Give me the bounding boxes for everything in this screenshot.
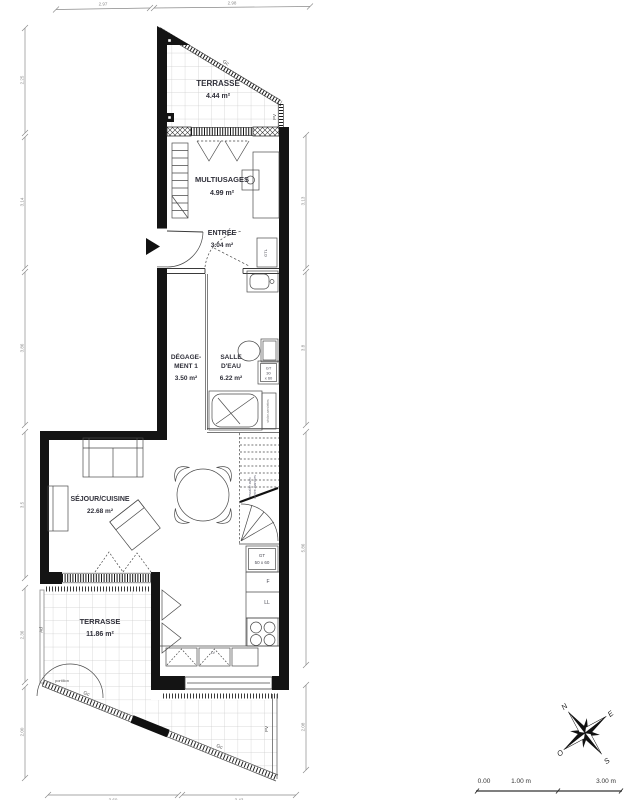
room-label-multiusages: MULTIUSAGES — [195, 175, 249, 184]
ad-label: Ad — [39, 627, 44, 633]
room-area-multiusages: 4.99 m² — [210, 190, 235, 197]
room-label-degagement-1: DÉGAGE- — [171, 352, 201, 361]
room-area-sejour: 22.68 m² — [87, 508, 114, 515]
hob — [247, 618, 278, 646]
window-opening-indicator — [95, 552, 123, 572]
entrance-door-leaf — [167, 231, 203, 232]
pv-label-top: PV — [272, 114, 277, 120]
room-area-terrasse-bottom: 11.86 m² — [86, 631, 114, 638]
room-label-sejour: SÉJOUR/CUISINE — [70, 494, 129, 503]
floorplan-page: Gc PV TERRASSE 4.44 m² — [0, 0, 629, 800]
washing-machine-label: LL — [264, 600, 270, 606]
room-label-entree: ENTRÉE — [208, 228, 237, 237]
dim-top-1: 2.97 — [99, 2, 108, 7]
gtl-label: GTL — [263, 248, 268, 257]
stairs-cut-line — [240, 488, 278, 502]
portillon-label: portillon — [55, 678, 69, 683]
accordion-door — [162, 590, 181, 653]
entrance-door-swing — [167, 232, 203, 267]
dim-left-6: 2.00 — [20, 727, 25, 736]
kitchen: GT 50 x 60 F LL LV — [160, 546, 279, 666]
top-terrace: Gc PV TERRASSE 4.44 m² — [157, 26, 283, 127]
gt30-size2: x 60 — [265, 376, 273, 381]
dim-right-4: 2.08 — [301, 722, 306, 731]
folding-door — [197, 141, 249, 161]
room-area-entree: 3.04 m² — [211, 242, 234, 249]
entrance-arrow — [146, 238, 160, 255]
gt50-label: GT — [259, 553, 266, 558]
dining-table — [177, 469, 229, 521]
salle-eau-room: GT 30 x 60 sèche-serviettes DÉGAGE- MENT… — [171, 271, 279, 430]
floorplan-drawing: Gc PV TERRASSE 4.44 m² — [0, 0, 629, 800]
scale-one: 1.00 m — [511, 778, 531, 785]
room-label-salle-eau-2: D'EAU — [221, 363, 241, 370]
compass-rose: N E S O — [534, 681, 629, 786]
armchair — [110, 500, 161, 551]
gt50-cabinet — [246, 546, 278, 572]
dim-right-3: 5.86 — [301, 543, 306, 552]
stairs-label-2: contre-marches — [253, 475, 257, 499]
dim-left-3: 3.86 — [20, 343, 25, 352]
compass-e: E — [606, 708, 616, 719]
towel-radiator-label: sèche-serviettes — [266, 399, 270, 423]
terrace-left-edge — [40, 590, 44, 683]
compass-n: N — [559, 701, 569, 712]
gt50-size: 50 x 60 — [255, 560, 270, 565]
entree-room: GTL ENTRÉE 3.04 m² — [146, 228, 277, 267]
left-wall — [157, 136, 167, 228]
scale-zero: 0.00 — [478, 778, 491, 785]
stairs: escalier avec contre-marches — [239, 433, 279, 545]
room-label-degagement-2: MENT 1 — [174, 363, 198, 370]
dim-right-1: 3.13 — [301, 196, 306, 205]
dim-left-4: 3.5 — [20, 501, 25, 508]
compass-w: O — [555, 748, 565, 759]
dim-left-5: 2.36 — [20, 630, 25, 639]
sejour-cuisine-room: SÉJOUR/CUISINE 22.68 m² — [48, 438, 236, 572]
room-area-degagement: 3.50 m² — [175, 375, 198, 382]
room-label-salle-eau-1: SALLE — [220, 354, 242, 361]
room-area-terrasse-top: 4.44 m² — [206, 93, 231, 100]
room-area-salle-eau: 6.22 m² — [220, 375, 243, 382]
sejour-top-wall — [40, 431, 167, 440]
counter — [253, 152, 279, 218]
multiusages-room: MULTIUSAGES 4.99 m² — [172, 141, 279, 218]
sideboard — [48, 486, 68, 531]
stairs-label-1: escalier avec — [248, 477, 252, 497]
room-label-terrasse-bottom: TERRASSE — [80, 617, 121, 626]
dim-left-1: 2.25 — [20, 75, 25, 84]
dining-chairs — [170, 462, 236, 528]
dim-left-2: 3.14 — [20, 197, 25, 206]
scale-three: 3.00 m — [596, 778, 616, 785]
kitchen-left-wall — [151, 584, 160, 690]
dim-top-2: 2.98 — [228, 1, 237, 6]
right-wall — [279, 127, 289, 690]
scale-bar: 0.00 1.00 m 3.00 m — [475, 778, 623, 794]
dishwasher-label: LV — [211, 651, 216, 655]
room-label-terrasse-top: TERRASSE — [196, 79, 240, 88]
fridge-label: F — [266, 579, 269, 585]
compass-s: S — [602, 756, 611, 766]
pv-label-bottom: PV — [264, 726, 269, 732]
sink-unit — [232, 648, 258, 666]
base-cabinet — [166, 648, 197, 666]
window-opening-indicator — [123, 553, 151, 572]
dim-right-2: 3.8 — [301, 344, 306, 351]
